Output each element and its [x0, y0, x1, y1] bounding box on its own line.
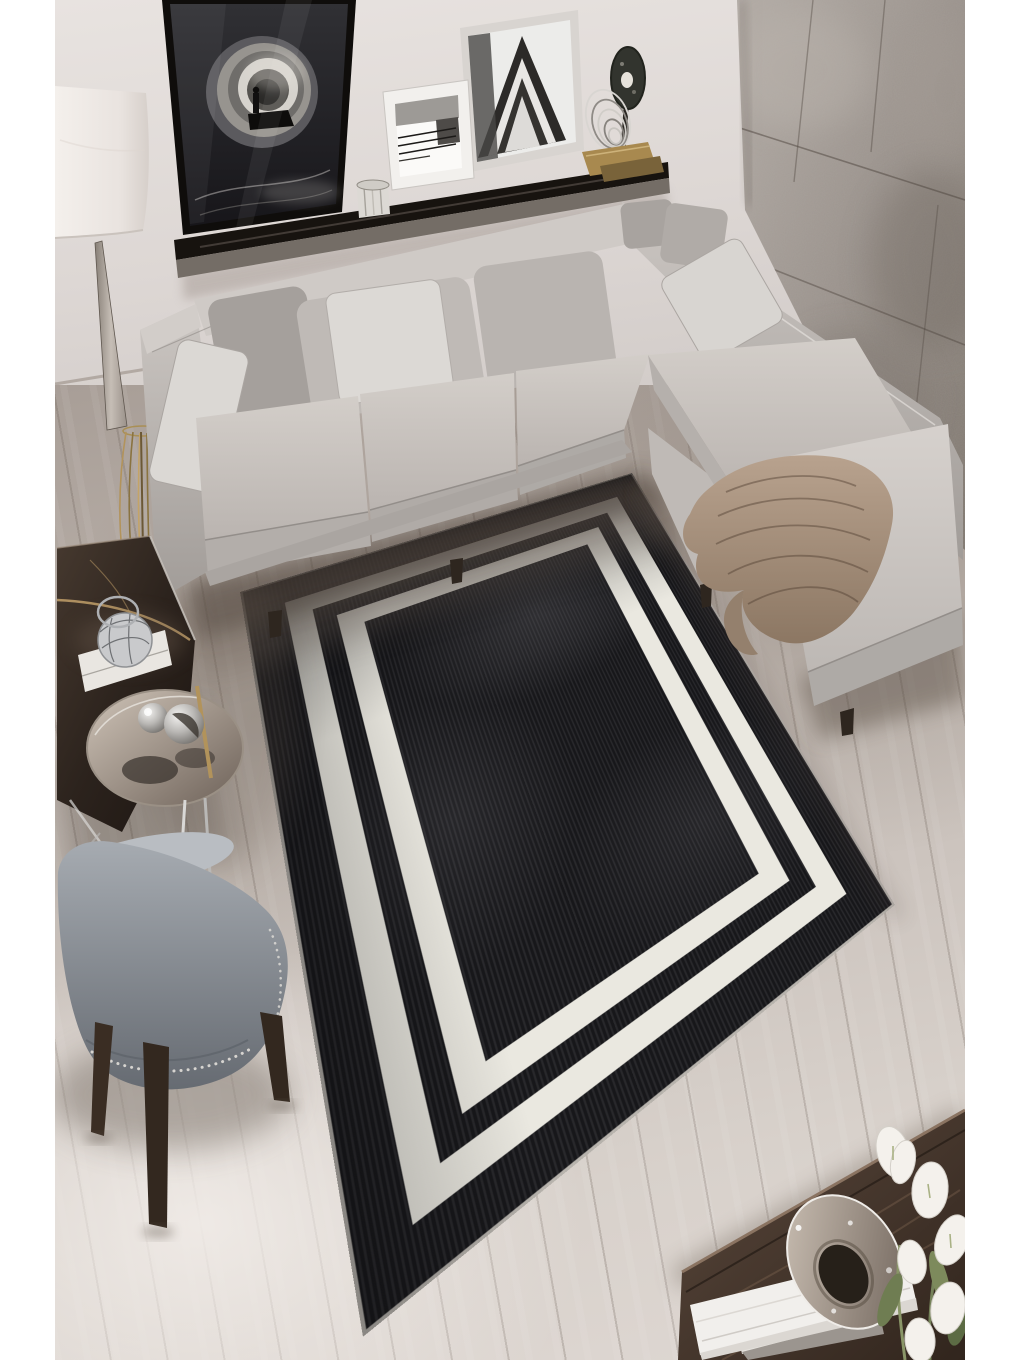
chevron-artwork-frame — [460, 10, 584, 172]
right-white-margin — [965, 0, 1020, 1360]
living-room-photo — [0, 0, 1020, 1360]
dark-wood-table — [678, 1110, 976, 1360]
gray-wingback-chair — [58, 822, 297, 1238]
left-white-margin — [0, 0, 55, 1360]
lamp-shade — [55, 86, 149, 238]
crystal-votive — [357, 180, 390, 218]
scene-overlay — [0, 0, 1020, 1360]
lamp-stem-cone — [95, 241, 127, 430]
tunnel-artwork-frame — [162, 0, 356, 235]
disc-sculpture — [578, 47, 664, 182]
lines-artwork-frame — [383, 80, 474, 190]
